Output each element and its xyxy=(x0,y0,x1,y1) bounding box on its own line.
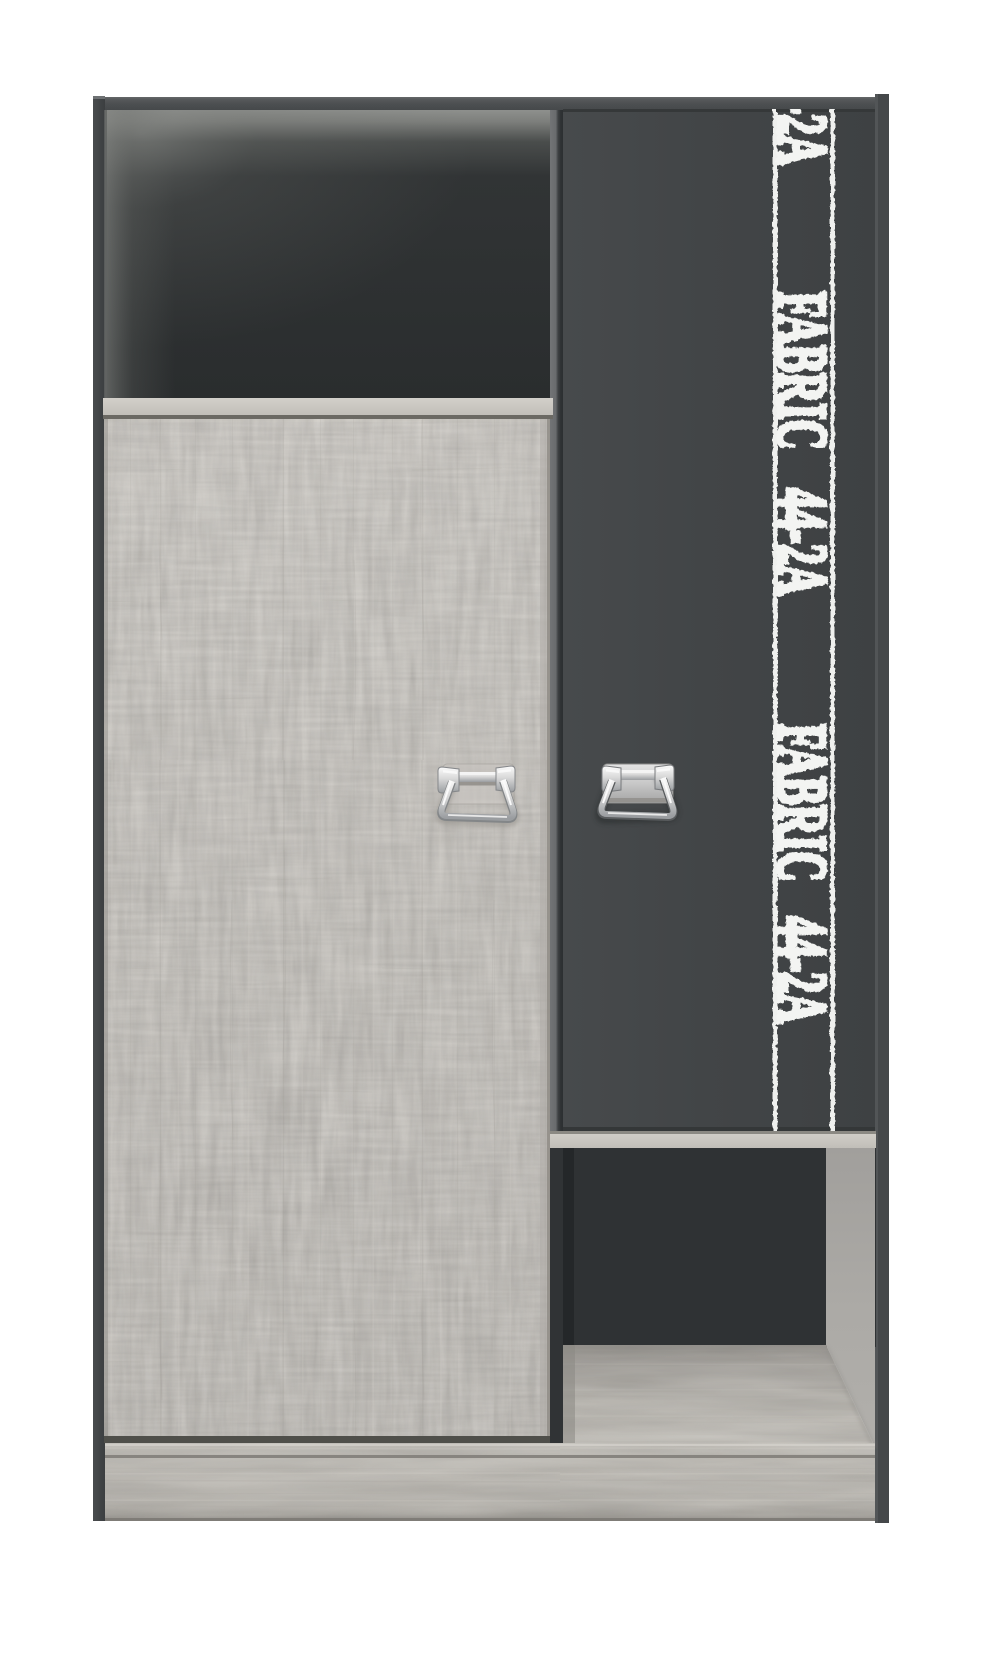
svg-text:FABRIC: FABRIC xyxy=(762,723,838,881)
svg-text:44-2A: 44-2A xyxy=(762,487,838,595)
svg-text:44-2A: 44-2A xyxy=(762,915,838,1023)
svg-text:FABRIC: FABRIC xyxy=(762,291,838,449)
